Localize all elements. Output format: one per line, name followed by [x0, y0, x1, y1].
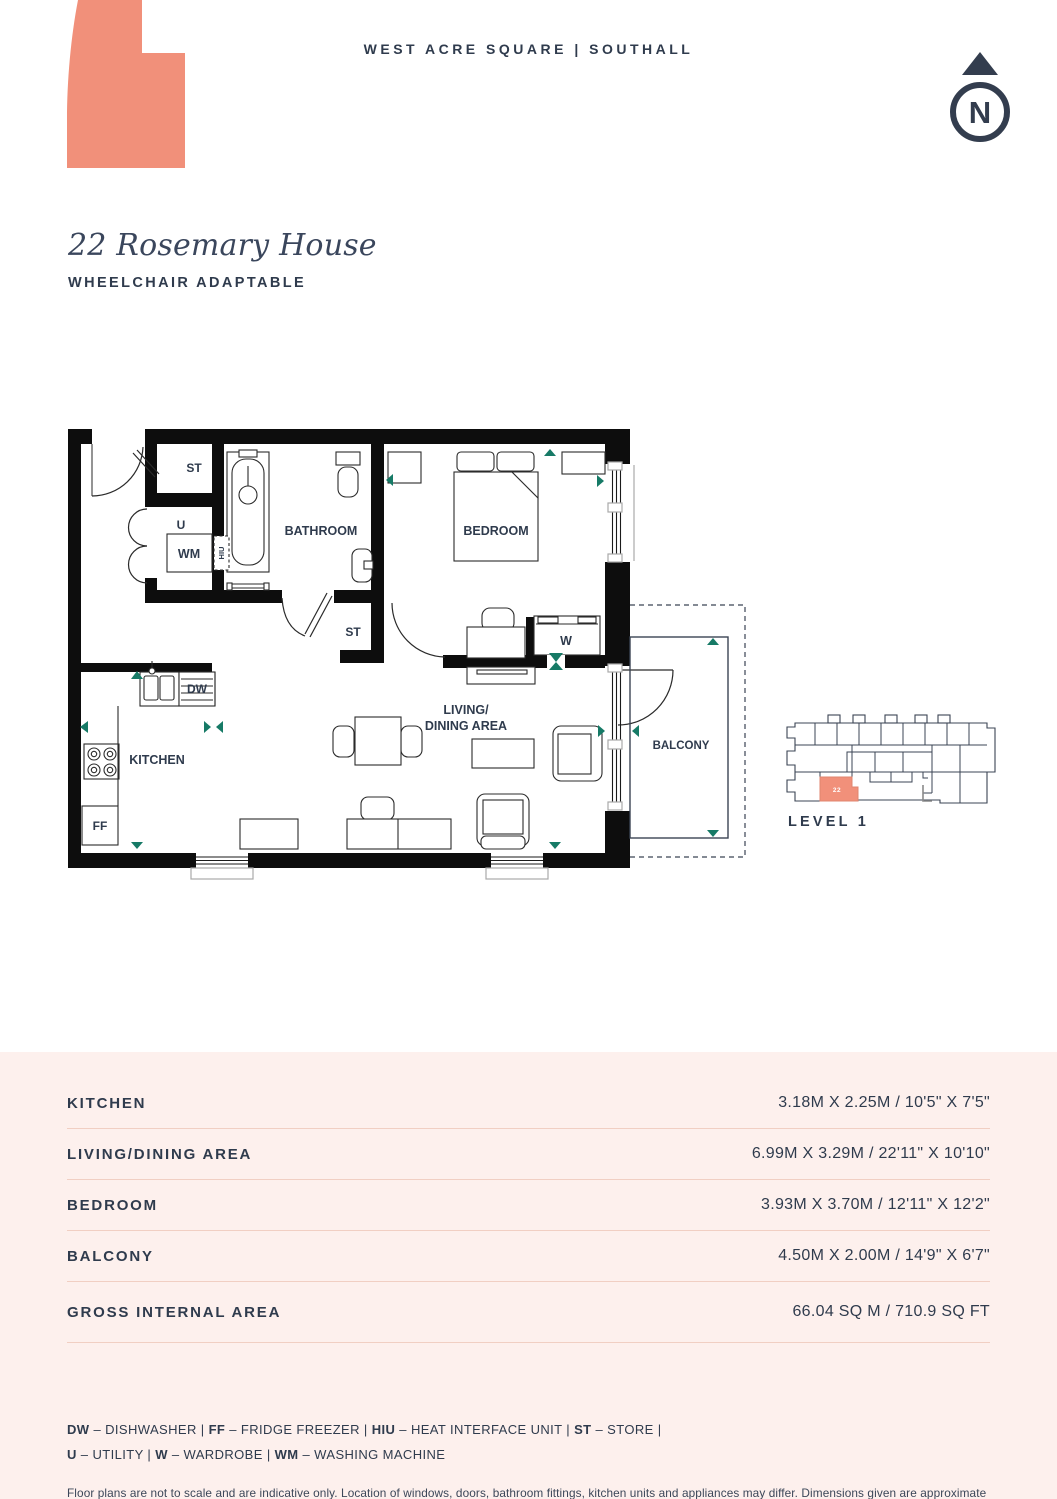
legend-text: – DISHWASHER | — [89, 1422, 208, 1437]
row-value: 66.04 SQ M / 710.9 SQ FT — [792, 1303, 990, 1321]
label-wardrobe: W — [560, 634, 572, 648]
table-row: BALCONY 4.50M X 2.00M / 14'9" X 6'7" — [67, 1231, 990, 1282]
legend-line-1: DW – DISHWASHER | FF – FRIDGE FREEZER | … — [67, 1417, 990, 1442]
legend-text: – HEAT INTERFACE UNIT | — [395, 1422, 574, 1437]
label-dishwasher: DW — [187, 682, 208, 696]
label-bathroom: BATHROOM — [285, 524, 358, 538]
label-utility: U — [177, 518, 186, 532]
development-title: WEST ACRE SQUARE | SOUTHALL — [0, 41, 1057, 57]
dining-table-chairs — [333, 717, 422, 765]
floor-plan: ST U WM HIU BATHROOM BEDROOM ST W DW KIT… — [55, 415, 780, 890]
hob — [84, 744, 119, 779]
armchair — [477, 794, 529, 849]
legend-abbr: HIU — [372, 1422, 396, 1437]
table-row: BEDROOM 3.93M X 3.70M / 12'11" X 12'2" — [67, 1180, 990, 1231]
dimensions-table: KITCHEN 3.18M X 2.25M / 10'5" X 7'5" LIV… — [67, 1052, 990, 1343]
table-row: KITCHEN 3.18M X 2.25M / 10'5" X 7'5" — [67, 1078, 990, 1129]
table-row: GROSS INTERNAL AREA 66.04 SQ M / 710.9 S… — [67, 1282, 990, 1343]
brand-logo-shape — [0, 0, 200, 172]
row-label: BALCONY — [67, 1248, 154, 1265]
title-block: 22 Rosemary House WHEELCHAIR ADAPTABLE — [68, 228, 377, 291]
legend-abbr: FF — [209, 1422, 226, 1437]
dimensions-panel: KITCHEN 3.18M X 2.25M / 10'5" X 7'5" LIV… — [0, 1052, 1057, 1499]
bedroom-desk — [467, 608, 525, 658]
label-living-2: DINING AREA — [425, 719, 507, 733]
sofa — [553, 726, 602, 781]
balcony-outline — [630, 605, 745, 857]
tv-unit — [467, 667, 535, 684]
label-hiu: HIU — [217, 547, 226, 560]
row-label: KITCHEN — [67, 1095, 146, 1112]
legend-abbr: W — [155, 1447, 168, 1462]
label-fridge-freezer: FF — [93, 819, 108, 833]
label-store-1: ST — [186, 461, 202, 475]
table-row: LIVING/DINING AREA 6.99M X 3.29M / 22'11… — [67, 1129, 990, 1180]
legend-text: – WASHING MACHINE — [299, 1447, 446, 1462]
label-washing-machine: WM — [178, 547, 200, 561]
label-store-2: ST — [345, 625, 361, 639]
label-balcony: BALCONY — [653, 740, 710, 752]
legend-text: – WARDROBE | — [168, 1447, 275, 1462]
legend-abbr: ST — [574, 1422, 591, 1437]
disclaimer-text: Floor plans are not to scale and are ind… — [67, 1484, 990, 1499]
bed — [454, 452, 538, 561]
legend-abbr: U — [67, 1447, 77, 1462]
legend-text: – FRIDGE FREEZER | — [225, 1422, 371, 1437]
row-label: BEDROOM — [67, 1197, 158, 1214]
living-desk — [347, 797, 451, 849]
label-kitchen: KITCHEN — [129, 753, 185, 767]
building-locator: 22 — [780, 700, 1015, 812]
legend-abbr: DW — [67, 1422, 89, 1437]
legend-text: – UTILITY | — [77, 1447, 155, 1462]
towel-rail — [227, 583, 269, 590]
row-value: 6.99M X 3.29M / 22'11" X 10'10" — [752, 1145, 990, 1163]
bathtub — [227, 450, 269, 572]
row-value: 3.18M X 2.25M / 10'5" X 7'5" — [778, 1094, 990, 1112]
label-living-1: LIVING/ — [443, 703, 489, 717]
legend-text: – STORE | — [592, 1422, 662, 1437]
north-arrow-icon — [962, 52, 998, 75]
unit-22-label: 22 — [833, 787, 841, 794]
label-bedroom: BEDROOM — [463, 524, 528, 538]
plot-title: 22 Rosemary House — [68, 228, 377, 263]
row-label: GROSS INTERNAL AREA — [67, 1304, 281, 1321]
plot-subtitle: WHEELCHAIR ADAPTABLE — [68, 275, 377, 291]
abbreviation-legend: DW – DISHWASHER | FF – FRIDGE FREEZER | … — [67, 1417, 990, 1467]
legend-line-2: U – UTILITY | W – WARDROBE | WM – WASHIN… — [67, 1442, 990, 1467]
row-value: 3.93M X 3.70M / 12'11" X 12'2" — [761, 1196, 990, 1214]
sideboard — [240, 819, 298, 849]
bedside-table — [562, 452, 605, 474]
floorplan-page: WEST ACRE SQUARE | SOUTHALL N 22 Rosemar… — [0, 0, 1057, 1499]
compass-n-label: N — [969, 95, 991, 130]
basin — [352, 549, 373, 582]
level-label: LEVEL 1 — [788, 814, 869, 830]
row-label: LIVING/DINING AREA — [67, 1146, 252, 1163]
north-compass-icon: N — [938, 46, 1024, 158]
legend-abbr: WM — [275, 1447, 299, 1462]
coffee-table — [472, 739, 534, 768]
toilet — [336, 452, 360, 497]
row-value: 4.50M X 2.00M / 14'9" X 6'7" — [778, 1247, 990, 1265]
